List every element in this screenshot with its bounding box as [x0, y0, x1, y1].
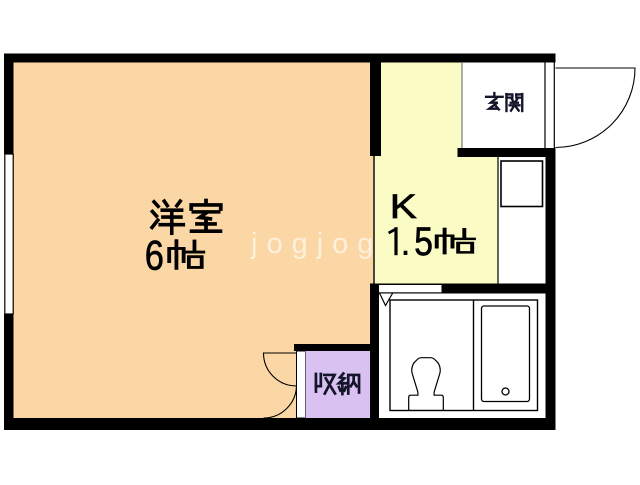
- svg-text:.: .: [400, 220, 411, 264]
- svg-text:jogjog: jogjog: [250, 228, 382, 260]
- svg-text:5: 5: [414, 219, 433, 263]
- svg-text:6: 6: [145, 233, 164, 280]
